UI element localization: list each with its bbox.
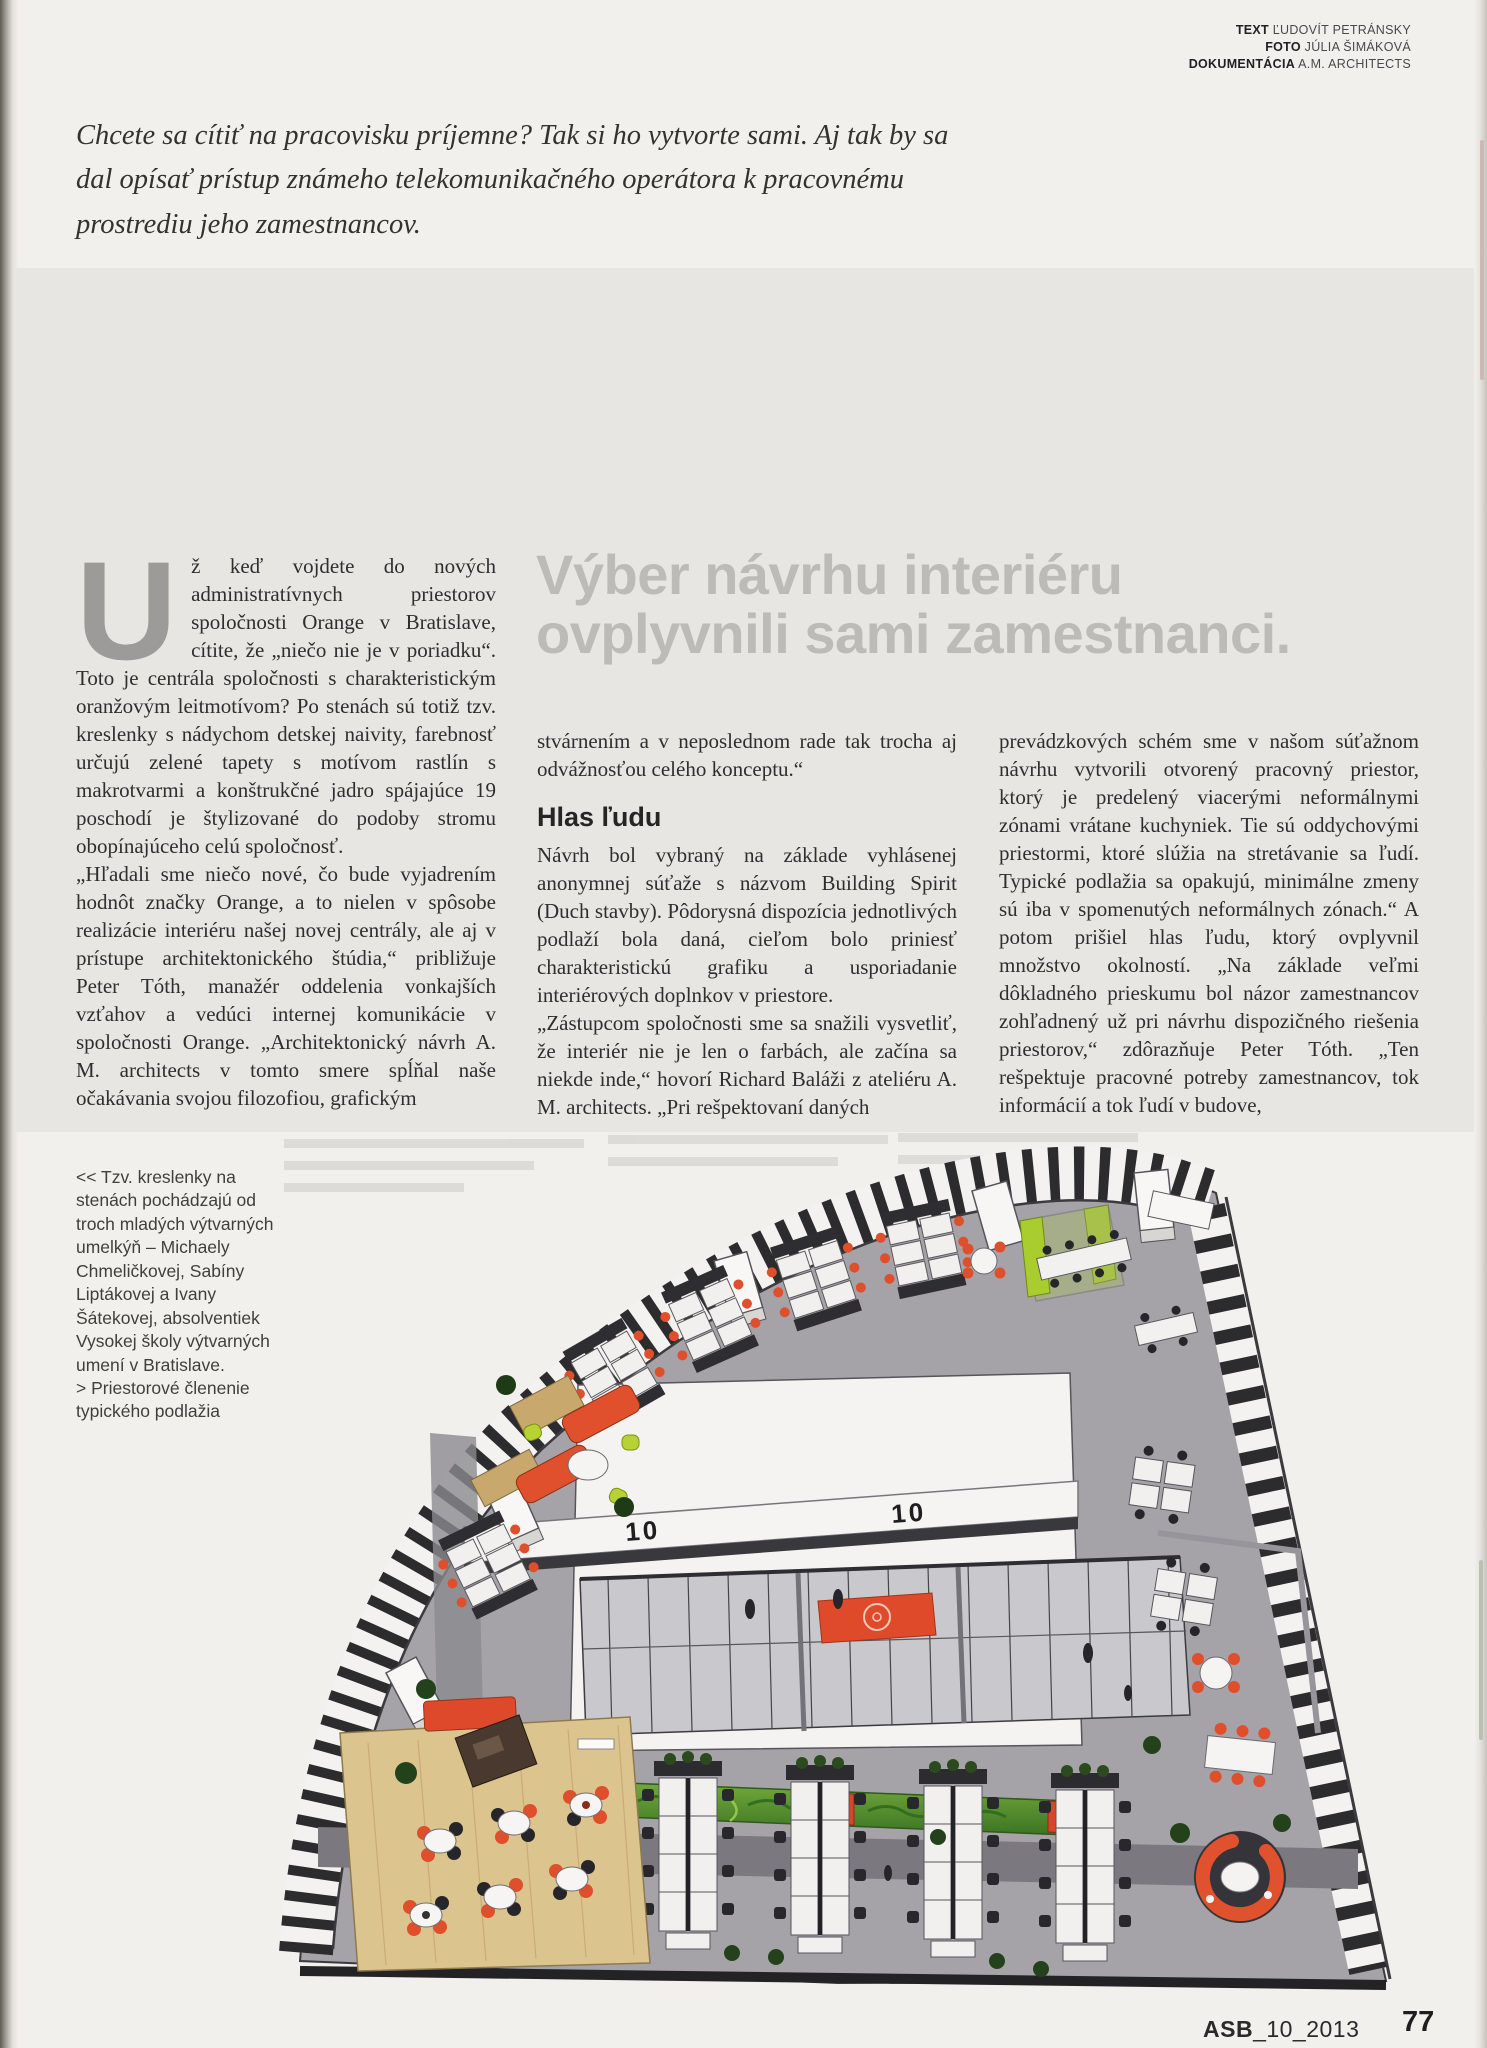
journal-issue-suffix: _10_2013 (1253, 2016, 1359, 2042)
person-figure (1124, 1685, 1132, 1701)
person-figure (884, 1865, 892, 1881)
credits-block: TEXT ĽUDOVÍT PETRÁNSKY FOTO JÚLIA ŠIMÁKO… (1189, 22, 1411, 73)
credit-row: TEXT ĽUDOVÍT PETRÁNSKY (1189, 22, 1411, 39)
body-column-2: stvárnením a v neposlednom rade tak troc… (537, 727, 957, 1121)
paragraph: Už keď vojdete do nových administratívny… (76, 552, 496, 860)
drop-cap: U (76, 560, 177, 662)
fore-edge-mark (1480, 140, 1484, 380)
credit-row: DOKUMENTÁCIA A.M. ARCHITECTS (1189, 56, 1411, 73)
lime-chair (622, 1435, 639, 1450)
plant (416, 1679, 436, 1699)
plant (1273, 1814, 1291, 1832)
coffee-table (568, 1450, 608, 1480)
plant (395, 1762, 417, 1784)
paragraph: „Zástupcom spoločnosti sme sa snažili vy… (537, 1009, 957, 1121)
paragraph: Návrh bol vybraný na základe vyhlásenej … (537, 841, 957, 1009)
journal-issue: ASB_10_2013 (1203, 2016, 1359, 2043)
person-figure (1083, 1643, 1093, 1663)
glass-meeting-rooms (580, 1557, 1190, 1735)
caption-item: << Tzv. kreslenky na stenách pochádzajú … (76, 1166, 298, 1377)
plant (1143, 1736, 1161, 1754)
beam-label: 10 (624, 1514, 661, 1547)
caption-arrow: << (76, 1167, 96, 1187)
person-figure (745, 1599, 755, 1619)
plant (1170, 1823, 1190, 1843)
fore-edge-mark (1479, 1560, 1483, 1740)
plant (768, 1949, 784, 1965)
caption-arrow: > (76, 1378, 86, 1398)
round-table (971, 1248, 997, 1274)
beam-label: 10 (890, 1496, 927, 1529)
credit-label: DOKUMENTÁCIA (1189, 57, 1295, 71)
caption-item: > Priestorové členenie typického podlaži… (76, 1377, 298, 1424)
person-figure (833, 1589, 843, 1609)
page-number: 77 (1402, 2006, 1434, 2039)
caption-text: Tzv. kreslenky na stenách pochádzajú od … (76, 1167, 273, 1375)
paragraph: stvárnením a v neposlednom rade tak troc… (537, 727, 957, 783)
caption-text: Priestorové členenie typického podlažia (76, 1378, 250, 1421)
round-orange-sofa (1194, 1831, 1286, 1923)
plant (614, 1497, 634, 1517)
kitchen-dining-area (340, 1697, 650, 1971)
plant (930, 1829, 946, 1845)
credit-label: FOTO (1265, 40, 1301, 54)
intro-lede: Chcete sa cítiť na pracovisku príjemne? … (76, 114, 988, 247)
headline: Výber návrhu interiéru ovplyvnili sami z… (536, 545, 1348, 664)
plant (496, 1375, 516, 1395)
section-subhead: Hlas ľudu (537, 803, 957, 831)
photo-caption: << Tzv. kreslenky na stenách pochádzajú … (76, 1166, 298, 1424)
magazine-page: TEXT ĽUDOVÍT PETRÁNSKY FOTO JÚLIA ŠIMÁKO… (0, 0, 1487, 2048)
paragraph: prevádzkových schém sme v našom súťažnom… (999, 727, 1419, 1119)
credit-value: A.M. ARCHITECTS (1298, 57, 1411, 71)
paragraph: „Hľadali sme niečo nové, čo bude vyjadre… (76, 860, 496, 1112)
journal-name: ASB (1203, 2016, 1253, 2042)
plant (724, 1945, 740, 1961)
plant (1033, 1961, 1049, 1977)
round-table (1200, 1657, 1232, 1689)
body-column-1: Už keď vojdete do nových administratívny… (76, 552, 496, 1112)
credit-value: ĽUDOVÍT PETRÁNSKY (1273, 23, 1411, 37)
credit-row: FOTO JÚLIA ŠIMÁKOVÁ (1189, 39, 1411, 56)
credit-value: JÚLIA ŠIMÁKOVÁ (1305, 40, 1411, 54)
body-column-3: prevádzkových schém sme v našom súťažnom… (999, 727, 1419, 1119)
plant (989, 1953, 1005, 1969)
floorplan-illustration: 10 10 (278, 1133, 1438, 2013)
credit-label: TEXT (1236, 23, 1269, 37)
